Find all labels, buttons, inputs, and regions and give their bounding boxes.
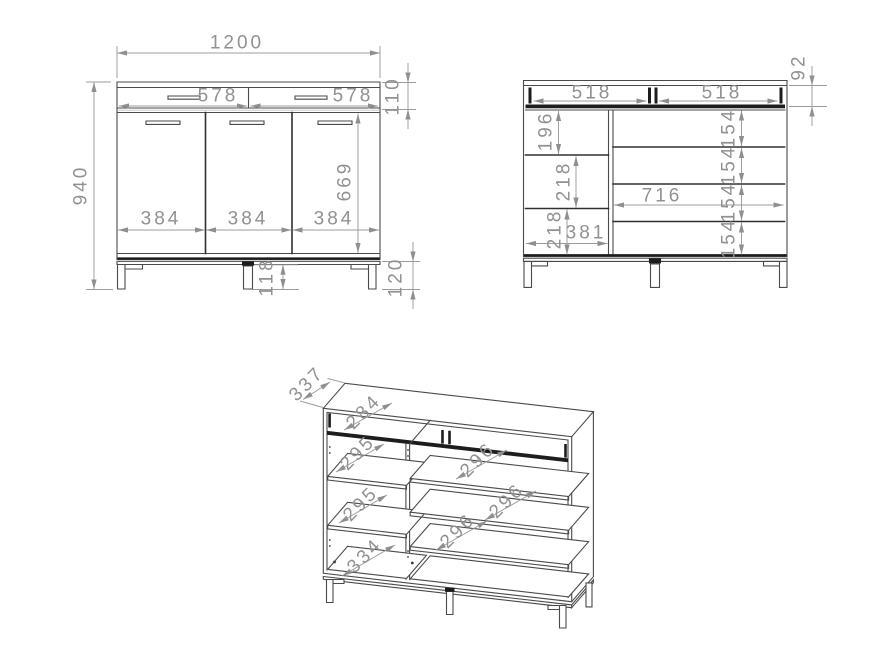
dim-label-1200: 1200 [210,33,264,54]
dim-label-578L: 578 [198,86,239,107]
right-leg [764,261,788,287]
center-leg-cap [242,261,254,265]
center-leg-cap [649,258,661,263]
dim-label-110: 110 [383,76,404,115]
drawing-svg: 1200 940 578 578 110 384 384 384 669 118… [0,0,888,666]
right-leg [351,265,376,290]
dim-label-154d: 154 [719,218,740,259]
dim-label-384c: 384 [314,209,355,230]
dim-label-218b: 218 [545,209,566,250]
center-leg [651,264,660,287]
dim-label-154a: 154 [719,108,740,149]
dim-label-940: 940 [71,165,92,206]
dim-label-518R: 518 [702,83,743,104]
dim-label-118: 118 [257,257,278,296]
dim-label-218a: 218 [554,161,575,202]
internal-view: 518 518 92 196 218 218 381 716 154 154 1… [524,53,828,287]
dim-label-669: 669 [335,161,356,202]
dim-label-384b: 384 [228,209,269,230]
dim-label-381: 381 [566,223,607,244]
dim-label-154c: 154 [719,182,740,223]
dim-label-337: 337 [285,362,329,406]
left-leg [118,265,143,290]
dim-label-196: 196 [536,111,557,152]
extension-lines [789,86,827,107]
dim-label-120: 120 [386,257,407,298]
center-leg-cap [445,588,455,592]
dim-label-578R: 578 [333,86,374,107]
center-leg [244,266,253,289]
dim-label-384a: 384 [141,209,182,230]
dim-label-154b: 154 [719,145,740,186]
front-view: 1200 940 578 578 110 384 384 384 669 118… [71,33,421,310]
dim-label-716: 716 [642,186,683,207]
dim-label-92: 92 [789,53,810,80]
isometric-view: 337 284 295 295 334 296 296 296 [285,362,593,628]
dim-label-518L: 518 [572,83,613,104]
left-leg [524,261,548,287]
drawer-bottom-rail [526,105,786,109]
technical-drawing-page: 1200 940 578 578 110 384 384 384 669 118… [0,0,888,666]
